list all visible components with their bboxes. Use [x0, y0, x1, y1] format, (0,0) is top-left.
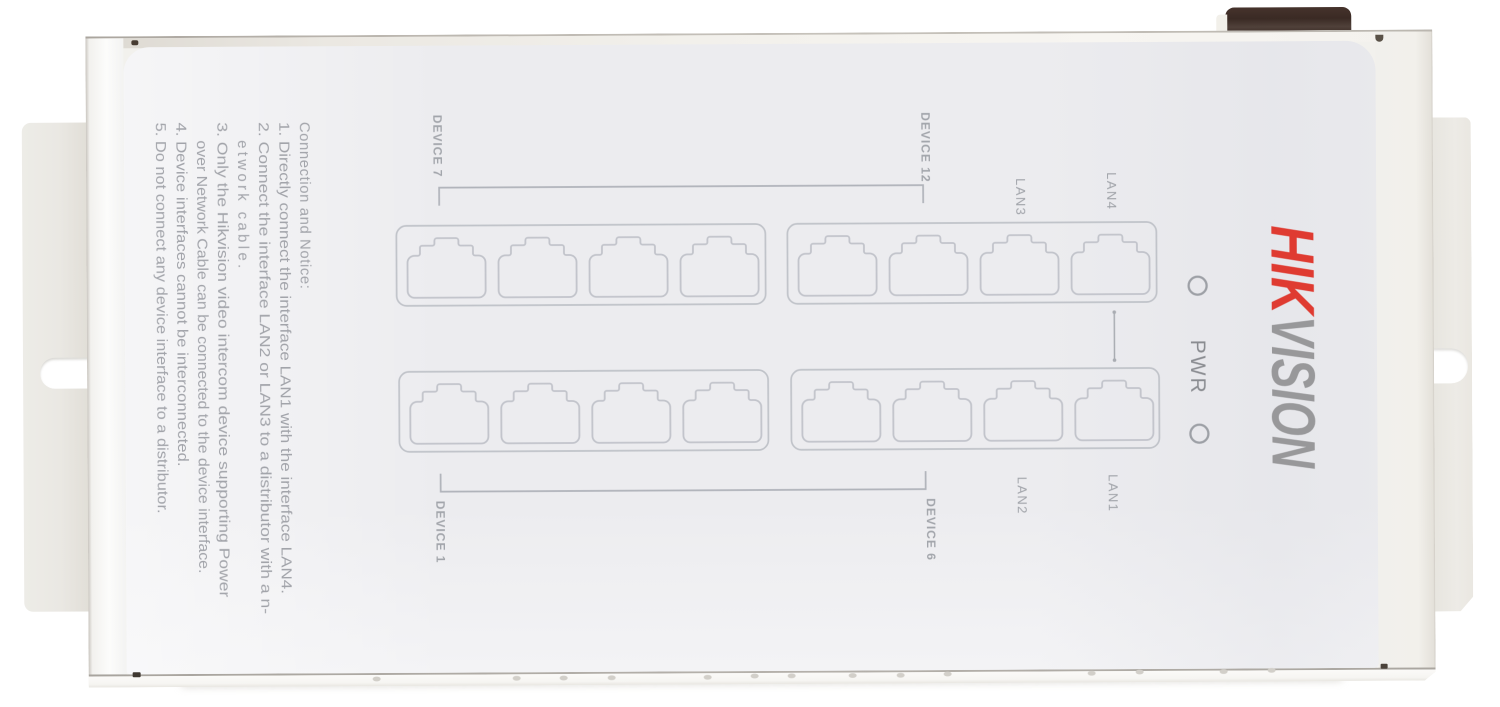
svg-text:3. Only the Hikvision video i: 3. Only the Hikvision video intercom dev…	[213, 122, 231, 597]
svg-text:1. Directly connect the inter: 1. Directly connect the interface LAN1 w…	[275, 122, 293, 594]
svg-text:LAN1: LAN1	[1106, 474, 1121, 512]
svg-text:DEVICE 7: DEVICE 7	[430, 115, 444, 178]
svg-text:HIK: HIK	[1258, 225, 1326, 318]
svg-text:etwork cable.: etwork cable.	[234, 140, 251, 271]
svg-text:5. Do not connect any device i: 5. Do not connect any device interface t…	[152, 123, 170, 514]
svg-text:DEVICE 12: DEVICE 12	[918, 112, 932, 182]
svg-text:DEVICE 6: DEVICE 6	[924, 498, 938, 561]
svg-text:4. Device interfaces cannot be: 4. Device interfaces cannot be interconn…	[172, 122, 190, 466]
svg-text:LAN3: LAN3	[1013, 178, 1028, 216]
svg-text:DEVICE 1: DEVICE 1	[433, 501, 447, 564]
svg-text:VISION: VISION	[1259, 316, 1328, 470]
svg-text:over Network Cable can be conn: over Network Cable can be connected to t…	[193, 140, 211, 573]
svg-text:Connection and Notice:: Connection and Notice:	[296, 122, 313, 289]
svg-text:2. Connect the interface LAN2: 2. Connect the interface LAN2 or LAN3 to…	[255, 122, 274, 614]
svg-text:LAN4: LAN4	[1104, 172, 1119, 210]
svg-text:LAN2: LAN2	[1015, 477, 1030, 515]
svg-text:PWR: PWR	[1186, 340, 1209, 395]
